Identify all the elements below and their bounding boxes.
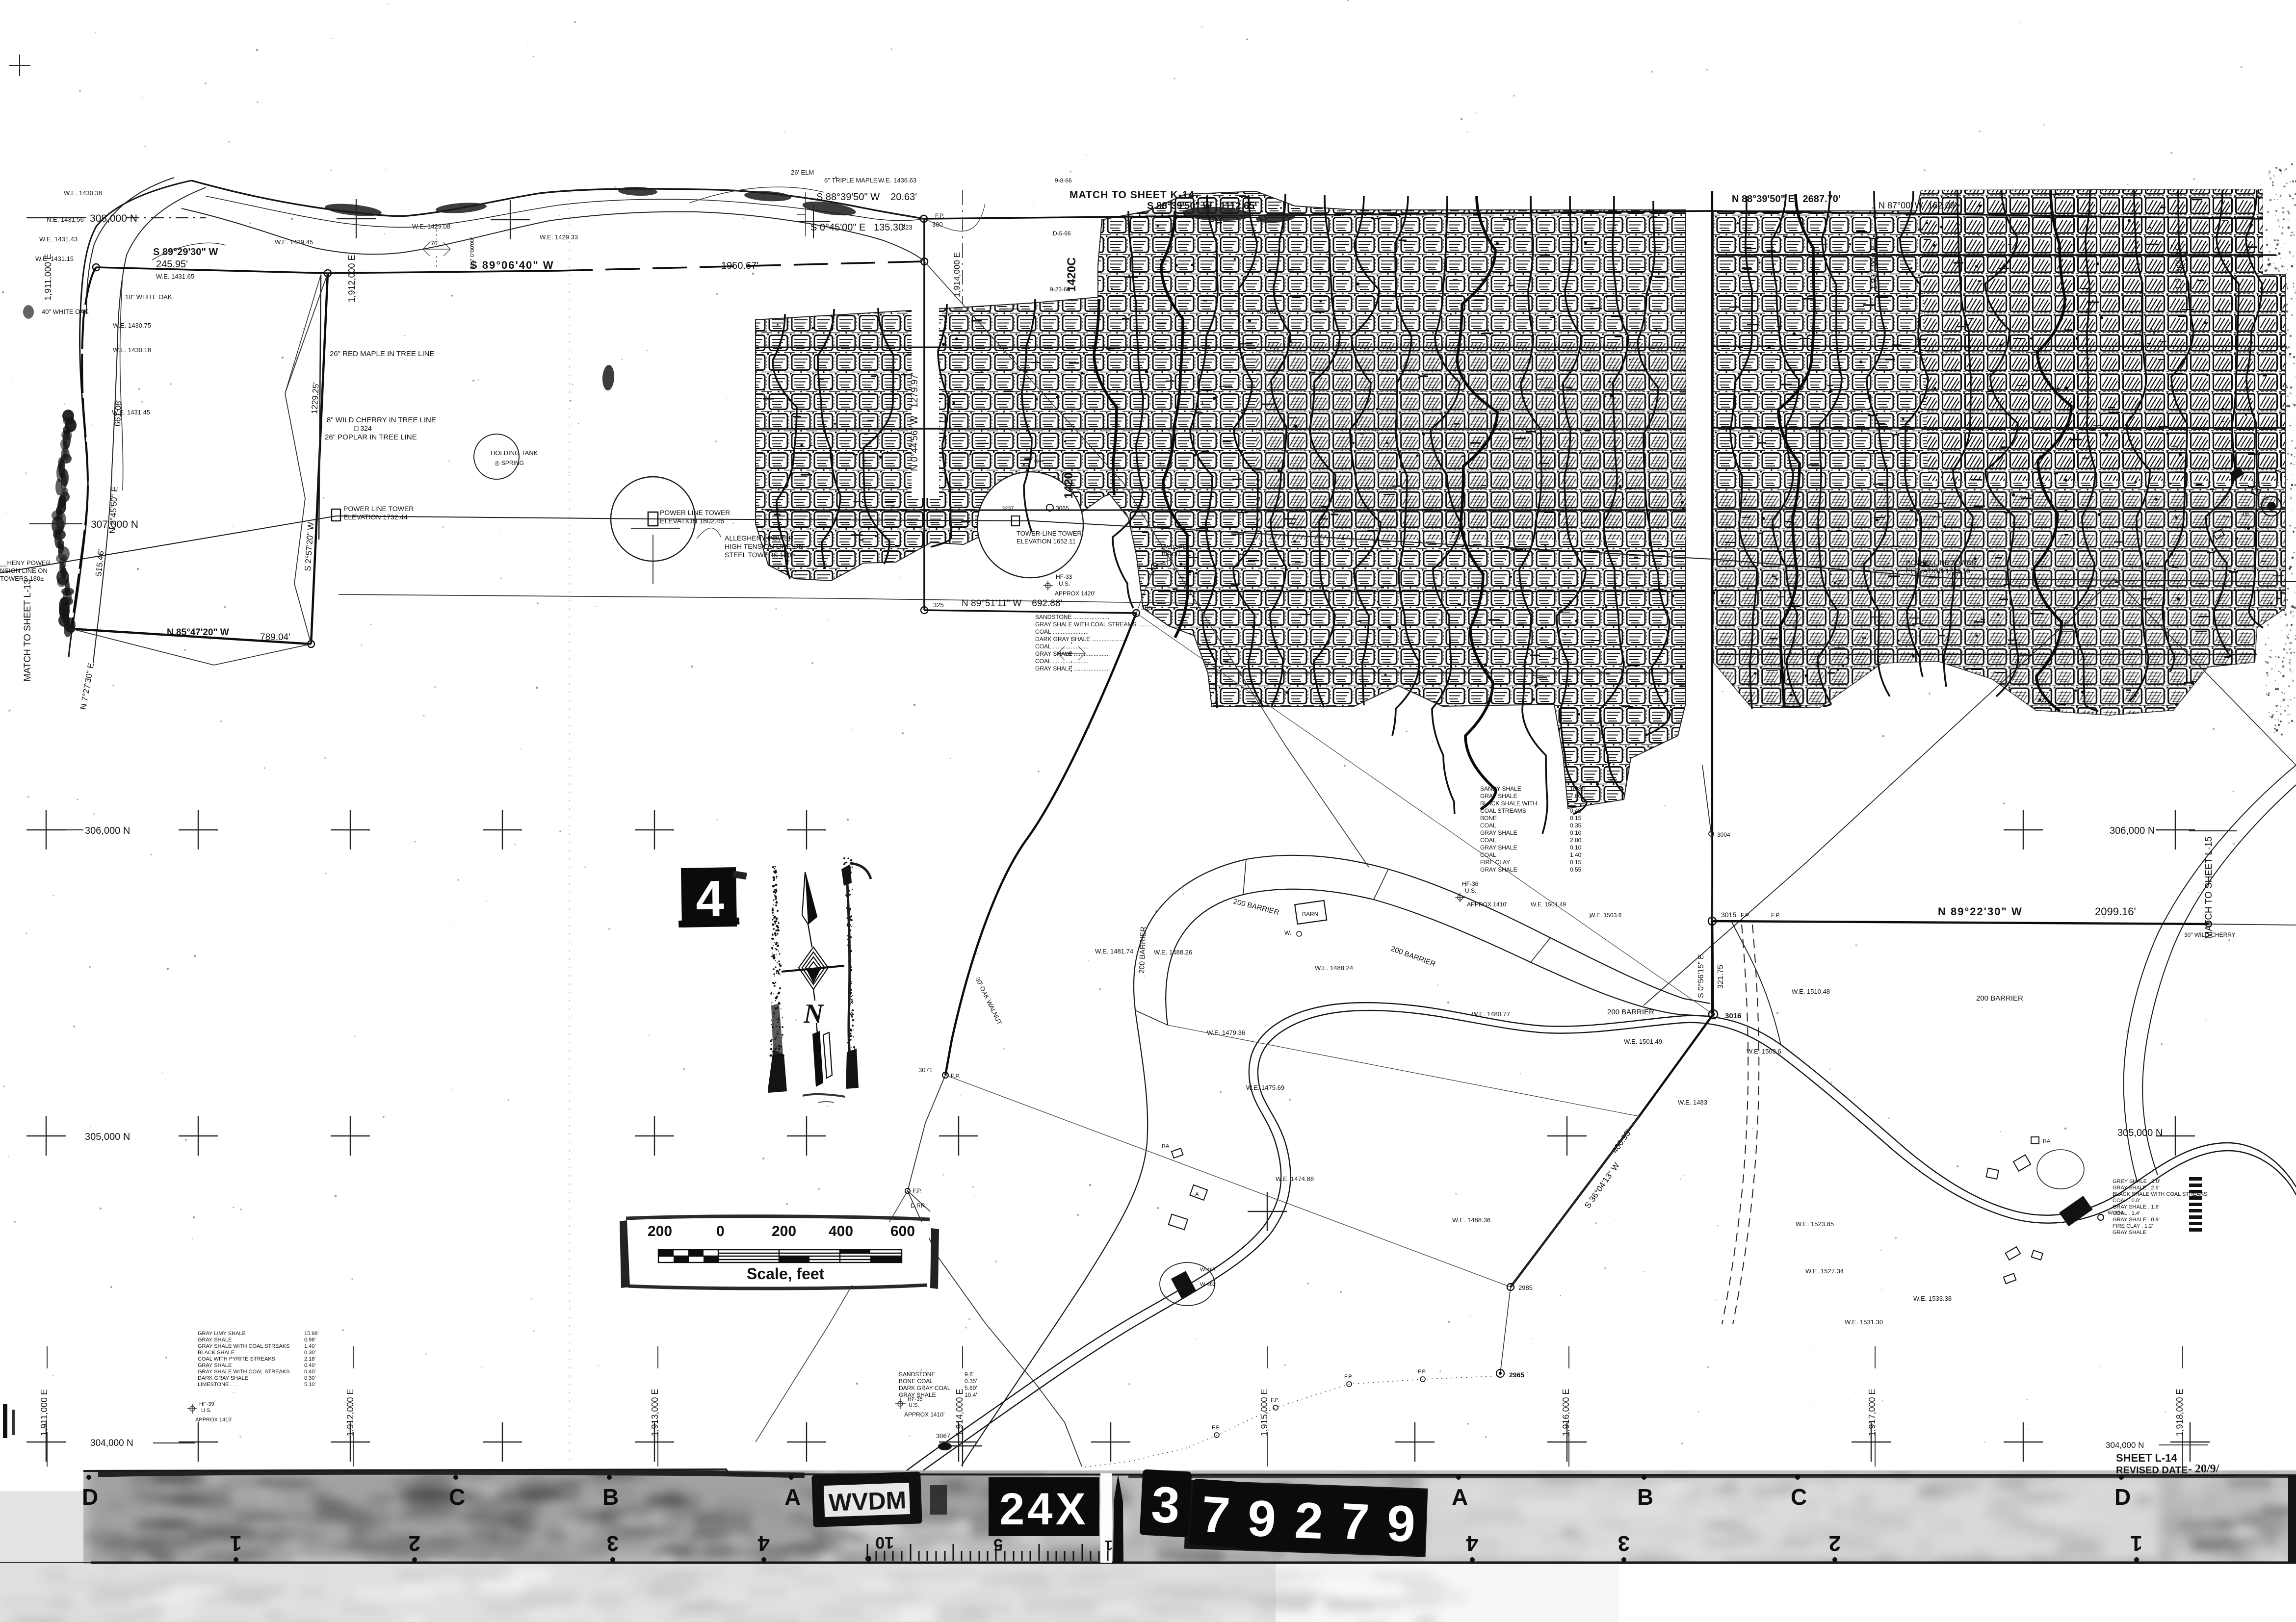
svg-text:1950.67': 1950.67' xyxy=(721,260,758,271)
svg-text:5.10': 5.10' xyxy=(304,1382,316,1388)
svg-text:789.04': 789.04' xyxy=(260,632,290,643)
svg-text:GRAY SHALE: GRAY SHALE xyxy=(1480,866,1517,873)
svg-text:7: 7 xyxy=(1200,1486,1232,1545)
svg-text:0.35': 0.35' xyxy=(965,1378,977,1385)
svg-text:W.E. 1430.75: W.E. 1430.75 xyxy=(113,322,151,329)
svg-text:N 89°51'11" W 692.88': N 89°51'11" W 692.88' xyxy=(962,598,1062,609)
svg-text:F.P.: F.P. xyxy=(935,212,944,219)
svg-text:W.E. 1501.49: W.E. 1501.49 xyxy=(1624,1038,1662,1045)
svg-text:HF-39: HF-39 xyxy=(199,1401,214,1407)
svg-text:0.40': 0.40' xyxy=(304,1363,316,1368)
svg-text:2.18': 2.18' xyxy=(304,1356,316,1362)
svg-text:1.40': 1.40' xyxy=(1570,851,1583,858)
svg-text:MATCH TO SHEET L-13: MATCH TO SHEET L-13 xyxy=(23,579,33,682)
svg-text:1,912,000 E: 1,912,000 E xyxy=(347,255,357,302)
svg-text:W.E. 1431.45: W.E. 1431.45 xyxy=(112,409,150,416)
svg-text:5.60': 5.60' xyxy=(965,1385,977,1391)
svg-text:0.15': 0.15' xyxy=(1570,859,1583,866)
svg-text:F.P.: F.P. xyxy=(1271,1397,1279,1403)
svg-text:304,000 N: 304,000 N xyxy=(2106,1441,2144,1450)
svg-text:RA: RA xyxy=(2043,1138,2051,1144)
svg-text:0: 0 xyxy=(716,1223,725,1239)
svg-text:3: 3 xyxy=(607,1531,619,1555)
svg-text:GRAY SHALE ...................: GRAY SHALE ...................... xyxy=(1035,665,1110,672)
svg-text:F.P.: F.P. xyxy=(1344,1374,1353,1380)
svg-text:200: 200 xyxy=(772,1223,796,1239)
svg-text:26" RED MAPLE IN TREE LINE: 26" RED MAPLE IN TREE LINE xyxy=(330,350,434,358)
svg-text:N 88°39'50" E 2687.70': N 88°39'50" E 2687.70' xyxy=(1732,194,1841,205)
svg-text:W.E. 1488.24: W.E. 1488.24 xyxy=(1315,964,1353,972)
svg-text:N.E. 1431.56: N.E. 1431.56 xyxy=(47,216,84,223)
svg-text:COAL WITH PYRITE STREAKS: COAL WITH PYRITE STREAKS xyxy=(198,1356,275,1362)
svg-text:200 BARRIER: 200 BARRIER xyxy=(1138,927,1148,974)
svg-text:GRAY SHALE WITH COAL STREAKS: GRAY SHALE WITH COAL STREAKS xyxy=(198,1343,289,1349)
svg-text:GRAY SHALE: GRAY SHALE xyxy=(198,1337,232,1343)
svg-text:SANDSTONE: SANDSTONE xyxy=(899,1371,935,1378)
svg-text:W.E. 1429.45: W.E. 1429.45 xyxy=(275,238,313,246)
svg-text:S 0°56'15" E: S 0°56'15" E xyxy=(1697,954,1705,998)
svg-text:C: C xyxy=(1791,1484,1807,1510)
svg-text:GRAY SHALE: GRAY SHALE xyxy=(1480,793,1517,799)
svg-text:GRAY SHALE WITH COAL STREAMS .: GRAY SHALE WITH COAL STREAMS ...........… xyxy=(1035,621,1174,628)
svg-text:1.40': 1.40' xyxy=(304,1343,316,1349)
svg-text:HF-33: HF-33 xyxy=(1056,573,1072,580)
svg-text:GRAY LIMY SHALE: GRAY LIMY SHALE xyxy=(198,1331,246,1337)
svg-text:APPROX 1415': APPROX 1415' xyxy=(195,1417,232,1423)
svg-text:0.30': 0.30' xyxy=(304,1375,316,1381)
svg-text:W.E. 1533.38: W.E. 1533.38 xyxy=(1913,1295,1952,1302)
svg-text:W.E. 1431.43: W.E. 1431.43 xyxy=(39,235,78,243)
svg-text:5: 5 xyxy=(993,1535,1003,1554)
svg-text:COAL . 0.8': COAL . 0.8' xyxy=(2113,1198,2140,1204)
svg-text:3067: 3067 xyxy=(936,1432,950,1440)
svg-text:SANDY SHALE: SANDY SHALE xyxy=(1480,785,1521,792)
svg-text:ELEVATION 1652.11: ELEVATION 1652.11 xyxy=(1017,538,1076,545)
svg-text:0.98': 0.98' xyxy=(304,1337,316,1343)
svg-text:GREY SHALE . 9.0': GREY SHALE . 9.0' xyxy=(2113,1179,2160,1184)
svg-text:COAL STREAMS: COAL STREAMS xyxy=(1480,807,1526,814)
svg-text:BONE: BONE xyxy=(1480,815,1497,822)
svg-text:305,000 N: 305,000 N xyxy=(85,1132,130,1142)
svg-text:1,914,000 E: 1,914,000 E xyxy=(955,1389,965,1436)
svg-text:W.E. 1531.30: W.E. 1531.30 xyxy=(1845,1318,1883,1326)
svg-text:3071: 3071 xyxy=(918,1066,933,1074)
svg-text:0.15': 0.15' xyxy=(1570,815,1583,822)
svg-text:W.E. 1429.08: W.E. 1429.08 xyxy=(412,223,450,230)
svg-text:1420: 1420 xyxy=(1062,472,1075,498)
svg-text:1,915,000 E: 1,915,000 E xyxy=(1259,1389,1269,1436)
svg-text:1: 1 xyxy=(2131,1531,2142,1555)
svg-text:15.98': 15.98' xyxy=(304,1331,319,1337)
svg-text:REVISED DATE: REVISED DATE xyxy=(2116,1465,2188,1476)
svg-text:LIMESTONE . . .: LIMESTONE . . . xyxy=(198,1382,238,1388)
svg-text:10: 10 xyxy=(875,1533,894,1552)
svg-text:DARK GRAY SHALE ..............: DARK GRAY SHALE ...................... xyxy=(1035,636,1128,643)
svg-text:APPROX 1420': APPROX 1420' xyxy=(1055,590,1095,597)
svg-text:W.E. 1475.69: W.E. 1475.69 xyxy=(1246,1084,1284,1091)
svg-text:N 87°00' W 162.09': N 87°00' W 162.09' xyxy=(1879,201,1957,210)
svg-text:3237: 3237 xyxy=(1002,506,1014,512)
svg-text:200: 200 xyxy=(648,1223,672,1239)
svg-text:W.E. 1503.6: W.E. 1503.6 xyxy=(1590,912,1622,919)
svg-text:FIRE CLAY: FIRE CLAY xyxy=(1480,859,1510,866)
svg-text:S 89°06'40" W: S 89°06'40" W xyxy=(470,259,554,271)
svg-text:9.6': 9.6' xyxy=(965,1371,974,1378)
svg-text:323: 323 xyxy=(902,224,913,231)
svg-text:W.E. 1523.85: W.E. 1523.85 xyxy=(1796,1220,1834,1228)
svg-text:GRAY SHALE: GRAY SHALE xyxy=(1480,844,1517,851)
svg-text:3: 3 xyxy=(1618,1531,1630,1555)
svg-text:2.80': 2.80' xyxy=(1570,837,1583,844)
svg-text:9: 9 xyxy=(1246,1490,1278,1548)
svg-text:COAL ......................: COAL ...................... xyxy=(1035,628,1089,635)
svg-text:W.E. 1488.36: W.E. 1488.36 xyxy=(1452,1216,1490,1224)
svg-text:600: 600 xyxy=(890,1223,915,1239)
svg-text:◎ SPRING: ◎ SPRING xyxy=(495,460,524,466)
svg-text:W.E. 1527.34: W.E. 1527.34 xyxy=(1805,1267,1844,1275)
svg-text:1,917,000 E: 1,917,000 E xyxy=(1869,245,1879,290)
svg-text:W.E. 1431.15: W.E. 1431.15 xyxy=(35,255,74,262)
svg-text:MATCH TO SHEET K-14: MATCH TO SHEET K-14 xyxy=(1070,189,1195,201)
svg-text:-06: -06 xyxy=(2241,511,2250,517)
svg-text:306,000 N: 306,000 N xyxy=(85,825,130,836)
svg-text:1,918,000 E: 1,918,000 E xyxy=(2175,1389,2185,1436)
svg-text:BARN: BARN xyxy=(1302,911,1318,918)
svg-text:W.E. 1481.74: W.E. 1481.74 xyxy=(1095,948,1133,955)
svg-text:1,912,000 E: 1,912,000 E xyxy=(345,1389,355,1436)
svg-text:0.35': 0.35' xyxy=(1570,822,1583,829)
svg-text:D: D xyxy=(82,1484,98,1510)
svg-text:10.4': 10.4' xyxy=(965,1391,977,1398)
svg-text:HF-36: HF-36 xyxy=(1462,880,1479,887)
svg-text:W.E. 1503.6: W.E. 1503.6 xyxy=(1747,1048,1781,1055)
svg-text:U.S.: U.S. xyxy=(201,1408,211,1414)
svg-text:1,917,000 E: 1,917,000 E xyxy=(1867,1389,1877,1436)
svg-text:N 85°47'20" W: N 85°47'20" W xyxy=(167,627,229,638)
svg-text:3015: 3015 xyxy=(1721,911,1736,919)
svg-text:325: 325 xyxy=(933,601,944,609)
svg-text:10.80': 10.80' xyxy=(1570,785,1586,792)
svg-text:U.S.: U.S. xyxy=(1465,887,1476,894)
svg-text:APPROX 1410': APPROX 1410' xyxy=(1467,901,1507,908)
svg-text:9: 9 xyxy=(1386,1495,1416,1553)
svg-text:304,000 N: 304,000 N xyxy=(90,1438,133,1448)
svg-text:__HENY POWER: __HENY POWER xyxy=(0,559,51,566)
svg-text:0.10': 0.10' xyxy=(1570,829,1583,836)
svg-text:HOLDING TANK: HOLDING TANK xyxy=(491,449,538,457)
svg-text:A: A xyxy=(1452,1484,1468,1510)
svg-text:S 0°45'00" E 135.30': S 0°45'00" E 135.30' xyxy=(810,222,906,233)
svg-text:SHEET L-14: SHEET L-14 xyxy=(2116,1452,2177,1464)
svg-text:GRAY SHALE . 2.6': GRAY SHALE . 2.6' xyxy=(2113,1185,2160,1191)
svg-text:B: B xyxy=(602,1484,619,1510)
svg-text:200 BARRIER: 200 BARRIER xyxy=(1607,1008,1654,1016)
svg-text:3065: 3065 xyxy=(1056,505,1069,512)
svg-text:U.S.: U.S. xyxy=(909,1402,919,1408)
svg-text:TOWERS 180±: TOWERS 180± xyxy=(0,575,44,582)
svg-text:BONE COAL: BONE COAL xyxy=(899,1378,933,1385)
svg-text:POWER LINE TOWER: POWER LINE TOWER xyxy=(343,505,414,513)
svg-text:POWER LINE TOWER: POWER LINE TOWER xyxy=(1906,559,1976,566)
svg-text:8" WILD CHERRY IN TREE LINE: 8" WILD CHERRY IN TREE LINE xyxy=(327,416,436,424)
svg-text:40" WHITE OAK: 40" WHITE OAK xyxy=(42,308,89,315)
svg-text:7-13-65: 7-13-65 xyxy=(1256,309,1277,315)
svg-text:DARK GRAY SHALE: DARK GRAY SHALE xyxy=(198,1375,248,1381)
svg-text:N 89°22'30" W: N 89°22'30" W xyxy=(1938,905,2023,918)
svg-text:300: 300 xyxy=(932,221,943,228)
svg-text:B: B xyxy=(1637,1484,1653,1510)
svg-text:7: 7 xyxy=(1339,1493,1371,1551)
svg-text:0.55': 0.55' xyxy=(1570,866,1583,873)
svg-text:F.P.: F.P. xyxy=(1212,1425,1221,1431)
svg-text:9-23-66: 9-23-66 xyxy=(1050,286,1070,293)
svg-text:BLACK SHALE: BLACK SHALE xyxy=(198,1350,235,1356)
svg-text:308,000 N: 308,000 N xyxy=(90,213,137,224)
svg-text:D-5-66: D-5-66 xyxy=(1053,230,1071,237)
svg-text:305,000 N: 305,000 N xyxy=(2117,1128,2163,1138)
svg-text:F.P.: F.P. xyxy=(1741,912,1750,919)
svg-text:W.E. 1430.38: W.E. 1430.38 xyxy=(64,189,102,197)
svg-text:F.P.: F.P. xyxy=(1771,912,1780,919)
svg-text:4: 4 xyxy=(695,870,725,927)
svg-text:W.E. 1430.18: W.E. 1430.18 xyxy=(113,346,151,354)
svg-text:DARK GRAY COAL: DARK GRAY COAL xyxy=(899,1385,951,1391)
svg-text:0.10': 0.10' xyxy=(1570,844,1583,851)
svg-text:400: 400 xyxy=(829,1223,853,1239)
svg-text:COAL ......................: COAL ...................... xyxy=(1035,658,1089,665)
svg-text:COAL ......................: COAL ...................... xyxy=(1035,643,1089,650)
svg-text:10' TRIPLE: 10' TRIPLE xyxy=(1160,544,1190,551)
svg-text:W.E. 1479.36: W.E. 1479.36 xyxy=(1207,1029,1245,1036)
svg-text:STEEL TOWERS 180±: STEEL TOWERS 180± xyxy=(725,551,795,559)
svg-text:245.95': 245.95' xyxy=(156,259,188,270)
svg-text:1229.25': 1229.25' xyxy=(310,382,320,414)
svg-text:W.E. 1480.77: W.E. 1480.77 xyxy=(1472,1010,1510,1018)
svg-text:3: 3 xyxy=(1150,1476,1181,1535)
svg-text:3016: 3016 xyxy=(1725,1012,1741,1020)
svg-text:APPROX 1410': APPROX 1410' xyxy=(904,1411,944,1418)
svg-text:HIGH TENSION LINE ON: HIGH TENSION LINE ON xyxy=(725,542,804,550)
svg-text:1,916,000 E: 1,916,000 E xyxy=(1561,1389,1571,1436)
svg-text:F.P.: F.P. xyxy=(951,1073,960,1080)
svg-text:BIRCH: BIRCH xyxy=(1162,551,1180,558)
svg-text:MATCH TO SHEET L-15: MATCH TO SHEET L-15 xyxy=(2204,837,2214,939)
svg-text:1: 1 xyxy=(1104,1537,1113,1553)
svg-text:COAL: COAL xyxy=(1480,851,1496,858)
svg-text:RA: RA xyxy=(1162,1143,1170,1149)
svg-text:2: 2 xyxy=(1294,1492,1324,1550)
svg-text:1,914,000 E: 1,914,000 E xyxy=(952,252,962,297)
svg-text:70': 70' xyxy=(431,240,439,247)
svg-text:ELEVATION 1779.19: ELEVATION 1779.19 xyxy=(1906,567,1970,575)
svg-text:307,000 N: 307,000 N xyxy=(91,519,138,530)
svg-text:W.E. 1431.65: W.E. 1431.65 xyxy=(156,273,194,280)
svg-text:N 0°44'56" W 1279.97': N 0°44'56" W 1279.97' xyxy=(910,372,920,471)
svg-text:COAL: COAL xyxy=(1480,822,1496,829)
svg-text:- 20/9/: - 20/9/ xyxy=(2188,1463,2219,1475)
svg-text:POWER LINE TOWER: POWER LINE TOWER xyxy=(660,509,730,516)
svg-text:W.E. 1488.26: W.E. 1488.26 xyxy=(1154,949,1192,956)
svg-text:0.40': 0.40' xyxy=(1570,807,1583,814)
svg-text:3004: 3004 xyxy=(1717,831,1730,838)
svg-text:U.S.: U.S. xyxy=(1059,580,1070,587)
svg-text:GRAY SHALE . 1.6': GRAY SHALE . 1.6' xyxy=(2113,1204,2160,1210)
svg-text:1,911,000 E: 1,911,000 E xyxy=(43,254,53,301)
svg-text:GRAY SHALE . 0.9': GRAY SHALE . 0.9' xyxy=(2113,1217,2160,1223)
svg-text:2: 2 xyxy=(409,1531,420,1555)
svg-text:7.80': 7.80' xyxy=(1570,793,1583,799)
svg-text:306: 306 xyxy=(1141,604,1152,612)
svg-text:SANDSTONE ....................: SANDSTONE ...................... xyxy=(1035,614,1109,620)
svg-text:ELEVATION 1802.46: ELEVATION 1802.46 xyxy=(660,517,724,525)
svg-text:WVDM: WVDM xyxy=(828,1486,907,1516)
svg-text:□ 324: □ 324 xyxy=(354,424,372,432)
svg-text:W-467: W-467 xyxy=(1200,1267,1216,1273)
svg-text:W.E. 1501.49: W.E. 1501.49 xyxy=(1531,901,1566,908)
svg-text:GRAY SHALE WITH COAL STREAKS: GRAY SHALE WITH COAL STREAKS xyxy=(198,1369,289,1375)
svg-text:S 89°29'30" W: S 89°29'30" W xyxy=(153,247,218,257)
svg-text:W.E. 1429.33: W.E. 1429.33 xyxy=(540,233,578,241)
svg-text:4: 4 xyxy=(1466,1531,1478,1555)
svg-text:ELEVATION 1732.44: ELEVATION 1732.44 xyxy=(343,513,408,521)
svg-text:W.E. 1436.63: W.E. 1436.63 xyxy=(878,177,916,184)
svg-text:2985: 2985 xyxy=(1518,1284,1533,1291)
svg-text:GRAY SHALE: GRAY SHALE xyxy=(1480,829,1517,836)
svg-text:TOWER-LINE TOWER: TOWER-LINE TOWER xyxy=(1017,530,1082,537)
svg-text:9-8-66: 9-8-66 xyxy=(1055,177,1072,184)
svg-text:GRAY SHALE: GRAY SHALE xyxy=(2113,1230,2146,1236)
svg-text:2965: 2965 xyxy=(1509,1371,1524,1379)
svg-text:1,918,000 E: 1,918,000 E xyxy=(2174,245,2183,290)
svg-text:26" POPLAR IN TREE LINE: 26" POPLAR IN TREE LINE xyxy=(325,433,417,441)
svg-text:GRAY SHALE: GRAY SHALE xyxy=(198,1363,232,1368)
svg-text:D: D xyxy=(2114,1484,2131,1510)
svg-text:6" TRIPLE MAPLE: 6" TRIPLE MAPLE xyxy=(824,177,878,184)
svg-text:N: N xyxy=(803,999,825,1029)
svg-text:24X: 24X xyxy=(999,1484,1089,1534)
svg-text:F.P.: F.P. xyxy=(1418,1369,1427,1375)
svg-text:0.40': 0.40' xyxy=(304,1369,316,1375)
svg-text:1,911,000 E: 1,911,000 E xyxy=(39,1389,49,1436)
svg-text:1,913,000 E: 1,913,000 E xyxy=(650,1389,660,1436)
svg-text:2: 2 xyxy=(1829,1531,1841,1555)
svg-text:NSION LINE ON: NSION LINE ON xyxy=(0,567,48,574)
svg-text:A: A xyxy=(784,1484,801,1510)
svg-text:COAL: COAL xyxy=(1480,837,1496,844)
svg-text:10" WHITE OAK: 10" WHITE OAK xyxy=(125,293,172,301)
svg-text:A: A xyxy=(1195,1191,1199,1197)
svg-text:0.30': 0.30' xyxy=(304,1350,316,1356)
svg-text:W.E. 1474.88: W.E. 1474.88 xyxy=(1276,1175,1314,1183)
svg-text:200 BARRIER: 200 BARRIER xyxy=(1976,994,2023,1003)
svg-text:4: 4 xyxy=(757,1531,770,1555)
svg-text:1: 1 xyxy=(230,1531,242,1555)
svg-text:W.E. 1510.48: W.E. 1510.48 xyxy=(1792,988,1830,995)
svg-text:S 88°39'50" W 20.63': S 88°39'50" W 20.63' xyxy=(816,192,917,203)
svg-text:GRAY SHALE ...................: GRAY SHALE ...................... xyxy=(1035,650,1110,657)
svg-text:HF-35: HF-35 xyxy=(908,1396,923,1402)
svg-text:26' ELM: 26' ELM xyxy=(791,169,814,176)
svg-text:ALLEGHENY POWER: ALLEGHENY POWER xyxy=(725,534,794,542)
svg-text:W.E. 1483: W.E. 1483 xyxy=(1678,1099,1707,1106)
svg-text:306,000 N: 306,000 N xyxy=(2110,825,2155,836)
svg-text:FIRE CLAY . 1.2': FIRE CLAY . 1.2' xyxy=(2113,1223,2153,1229)
svg-text:2099.16': 2099.16' xyxy=(2095,905,2136,918)
svg-text:F.P.: F.P. xyxy=(913,1187,922,1194)
svg-text:C: C xyxy=(449,1484,465,1510)
svg-text:W-462: W-462 xyxy=(1200,1282,1216,1287)
svg-text:Scale, feet: Scale, feet xyxy=(747,1265,825,1283)
svg-text:BLACK SHALE WITH: BLACK SHALE WITH xyxy=(1480,800,1537,807)
svg-text:W-456: W-456 xyxy=(2108,1210,2123,1216)
svg-text:W.: W. xyxy=(1284,929,1291,936)
svg-text:321.75': 321.75' xyxy=(1717,963,1725,989)
